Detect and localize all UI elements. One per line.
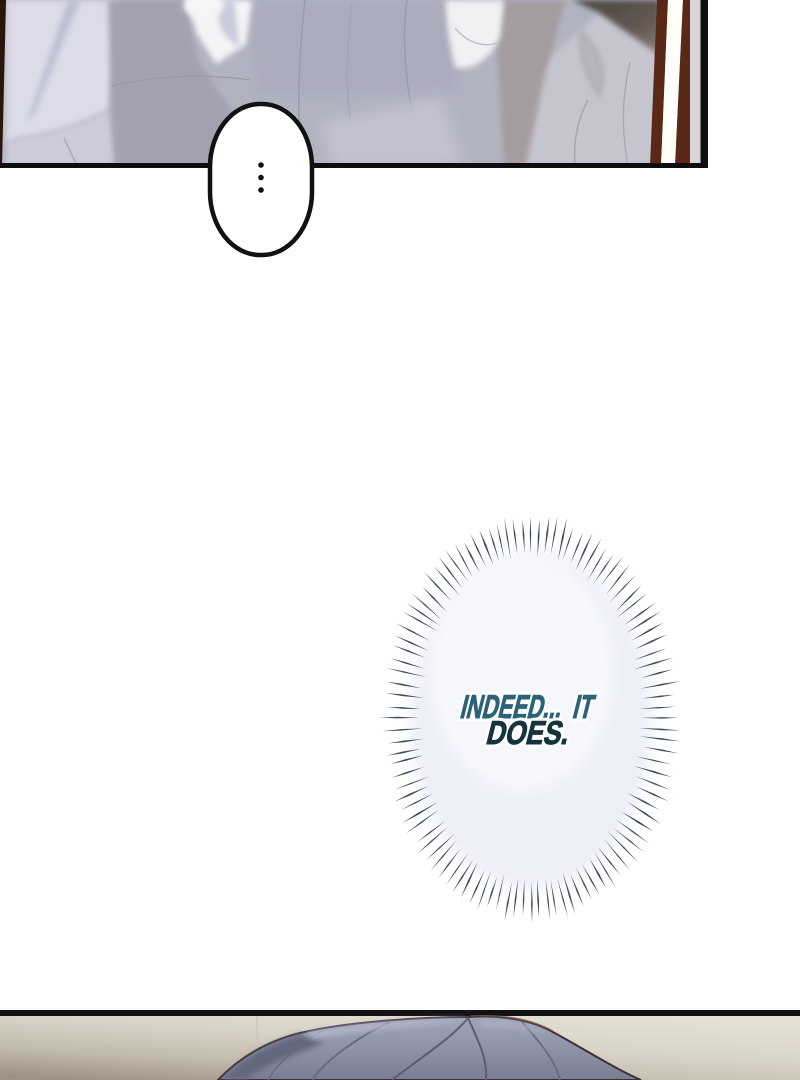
svg-text:DOES.: DOES. [483,715,574,752]
